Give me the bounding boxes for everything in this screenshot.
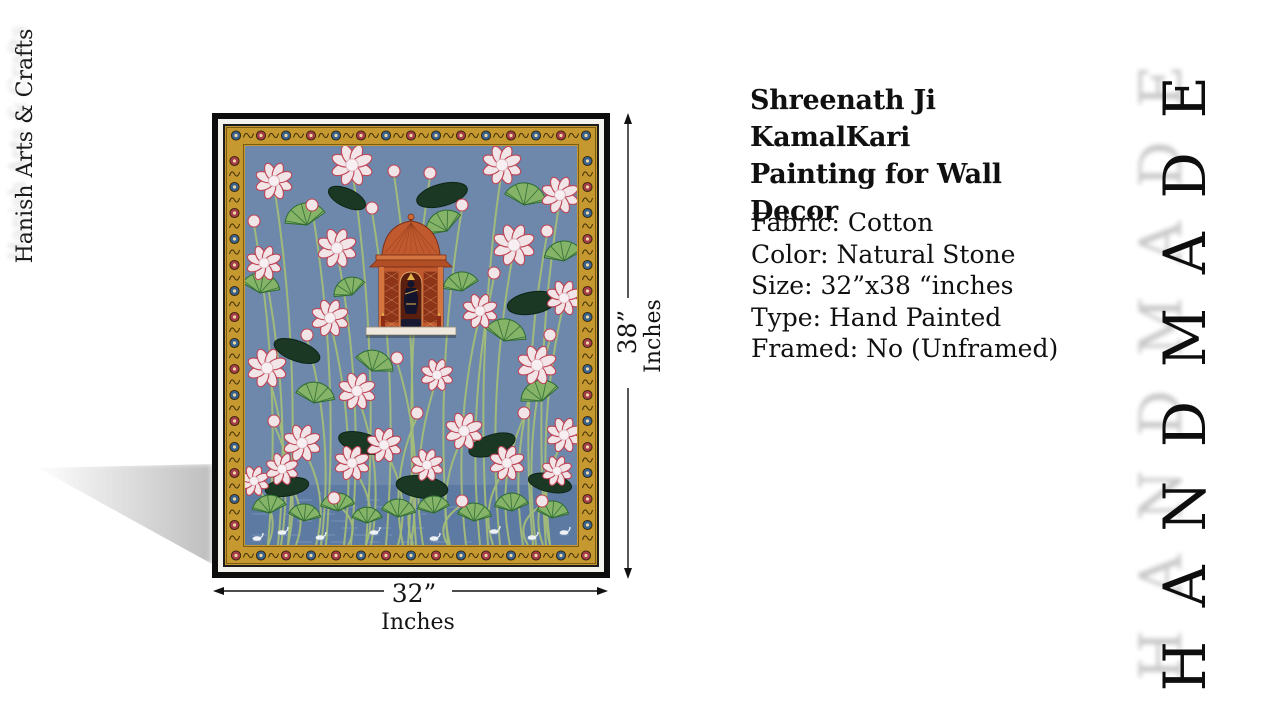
height-dimension-value: 38” <box>613 301 643 363</box>
width-dimension-unit: Inches <box>363 610 473 636</box>
height-dimension-unit: Inches <box>641 291 667 381</box>
product-title-line1: Shreenath Ji KamalKari <box>750 85 936 153</box>
spec-line-color: Color: Natural Stone <box>751 239 1091 271</box>
spec-line-size: Size: 32”x38 “inches <box>751 270 1091 302</box>
brand-vertical-text: Hanish Arts & Crafts <box>10 26 42 266</box>
width-dimension-value: 32” <box>374 579 454 609</box>
spec-line-type: Type: Hand Painted <box>751 302 1091 334</box>
product-specs: Fabric: Cotton Color: Natural Stone Size… <box>751 207 1091 365</box>
painting-frame <box>212 113 610 578</box>
handmade-vertical-text: HANDMADE <box>1145 27 1225 707</box>
product-image-canvas: Hanish Arts & Crafts 38” Inches 32” Inch… <box>0 0 1280 720</box>
spec-line-framed: Framed: No (Unframed) <box>751 333 1091 365</box>
frame-shadow <box>38 464 212 564</box>
painting-artwork-svg <box>212 113 610 578</box>
spec-line-fabric: Fabric: Cotton <box>751 207 1091 239</box>
